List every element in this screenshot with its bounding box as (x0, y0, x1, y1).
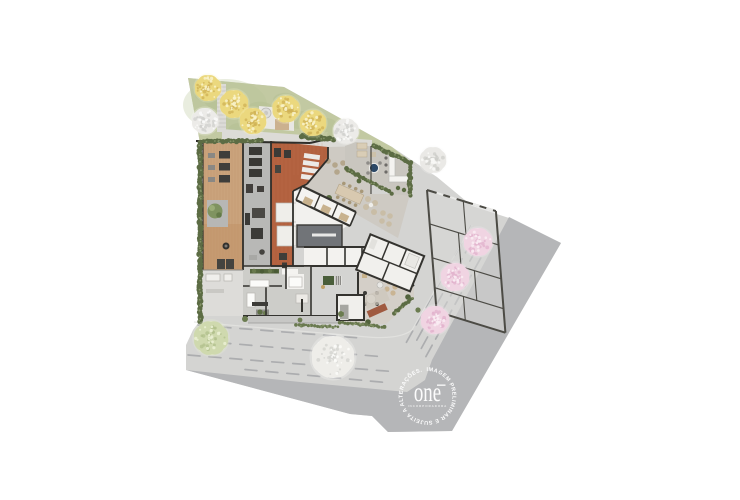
svg-text:INCORPORADORA: INCORPORADORA (408, 404, 448, 408)
